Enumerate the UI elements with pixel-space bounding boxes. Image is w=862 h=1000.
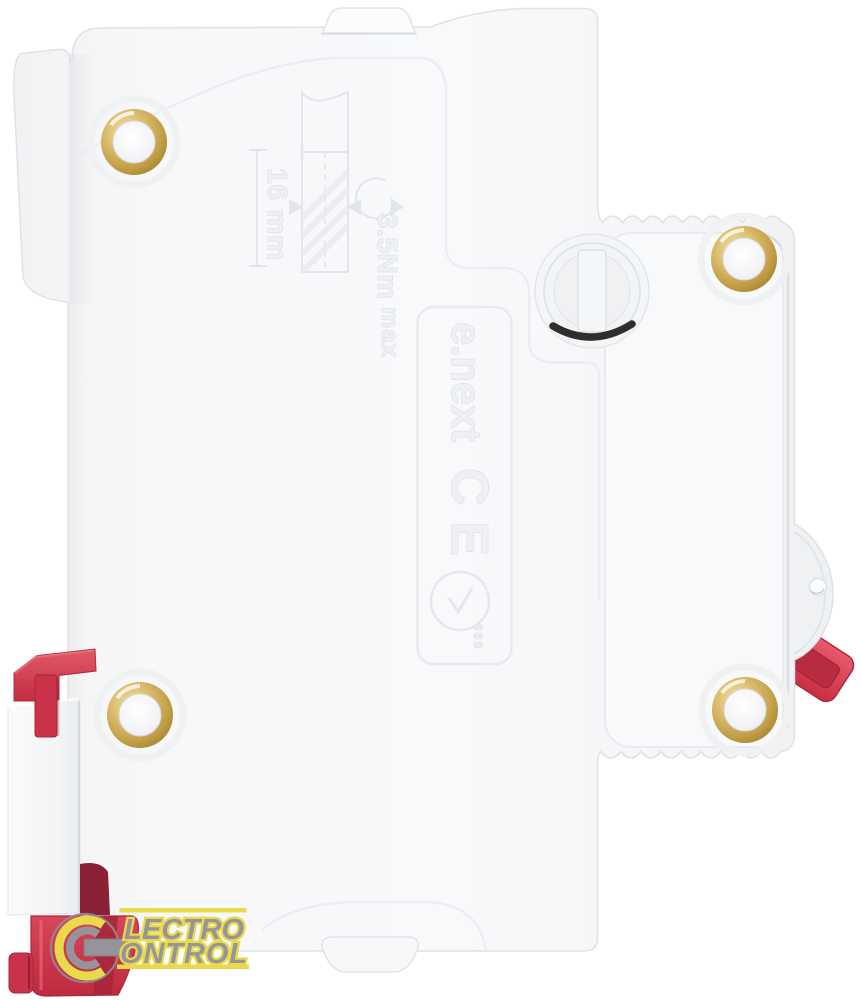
clip-stub <box>35 675 57 737</box>
strip-length-marking: 16 mm <box>262 168 293 260</box>
circuit-breaker-photo: 16 mm 3.5Nm max e.next CE 060 <box>0 0 862 1000</box>
brand-marking: e.next <box>443 322 490 442</box>
screw-slot <box>578 250 606 332</box>
torque-marking: 3.5Nm <box>372 213 403 299</box>
calibration-screw <box>535 234 649 348</box>
cert-code-marking: 060 <box>471 624 483 648</box>
logo-top-bar <box>120 908 247 913</box>
clip-shadowed-part <box>80 863 110 915</box>
torque-max-marking: max <box>376 307 403 358</box>
terminal-hole-top-left <box>91 99 177 185</box>
top-mounting-tab <box>322 8 416 34</box>
terminal-hole-bottom-left <box>97 672 183 758</box>
product-photo: 16 mm 3.5Nm max e.next CE 060 <box>0 0 862 1000</box>
pivot-hole <box>810 579 827 596</box>
bottom-mounting-tab <box>322 937 418 972</box>
terminal-hole-bottom-right <box>702 667 788 753</box>
logo-underline <box>117 965 249 970</box>
flange-shadow <box>69 54 93 304</box>
terminal-hole-top-right <box>701 216 787 302</box>
